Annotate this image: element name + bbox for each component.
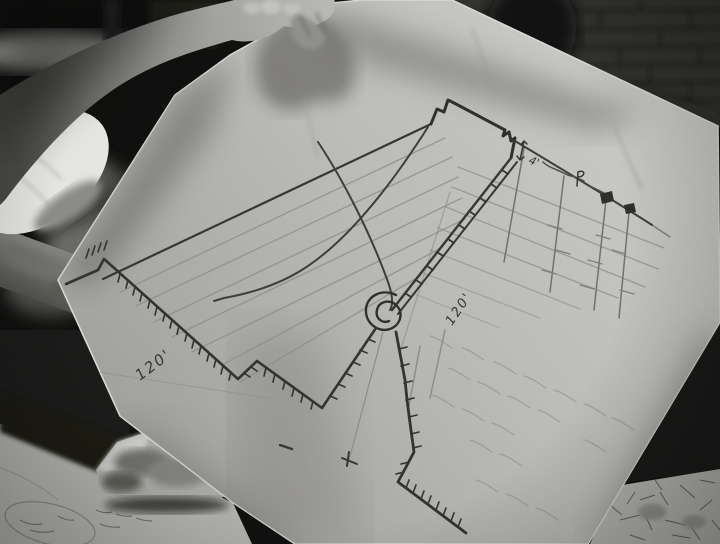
film-grain bbox=[0, 0, 720, 544]
film-still-frame: 120' 120' 4' bbox=[0, 0, 720, 544]
photo-canvas: 120' 120' 4' bbox=[0, 0, 720, 544]
